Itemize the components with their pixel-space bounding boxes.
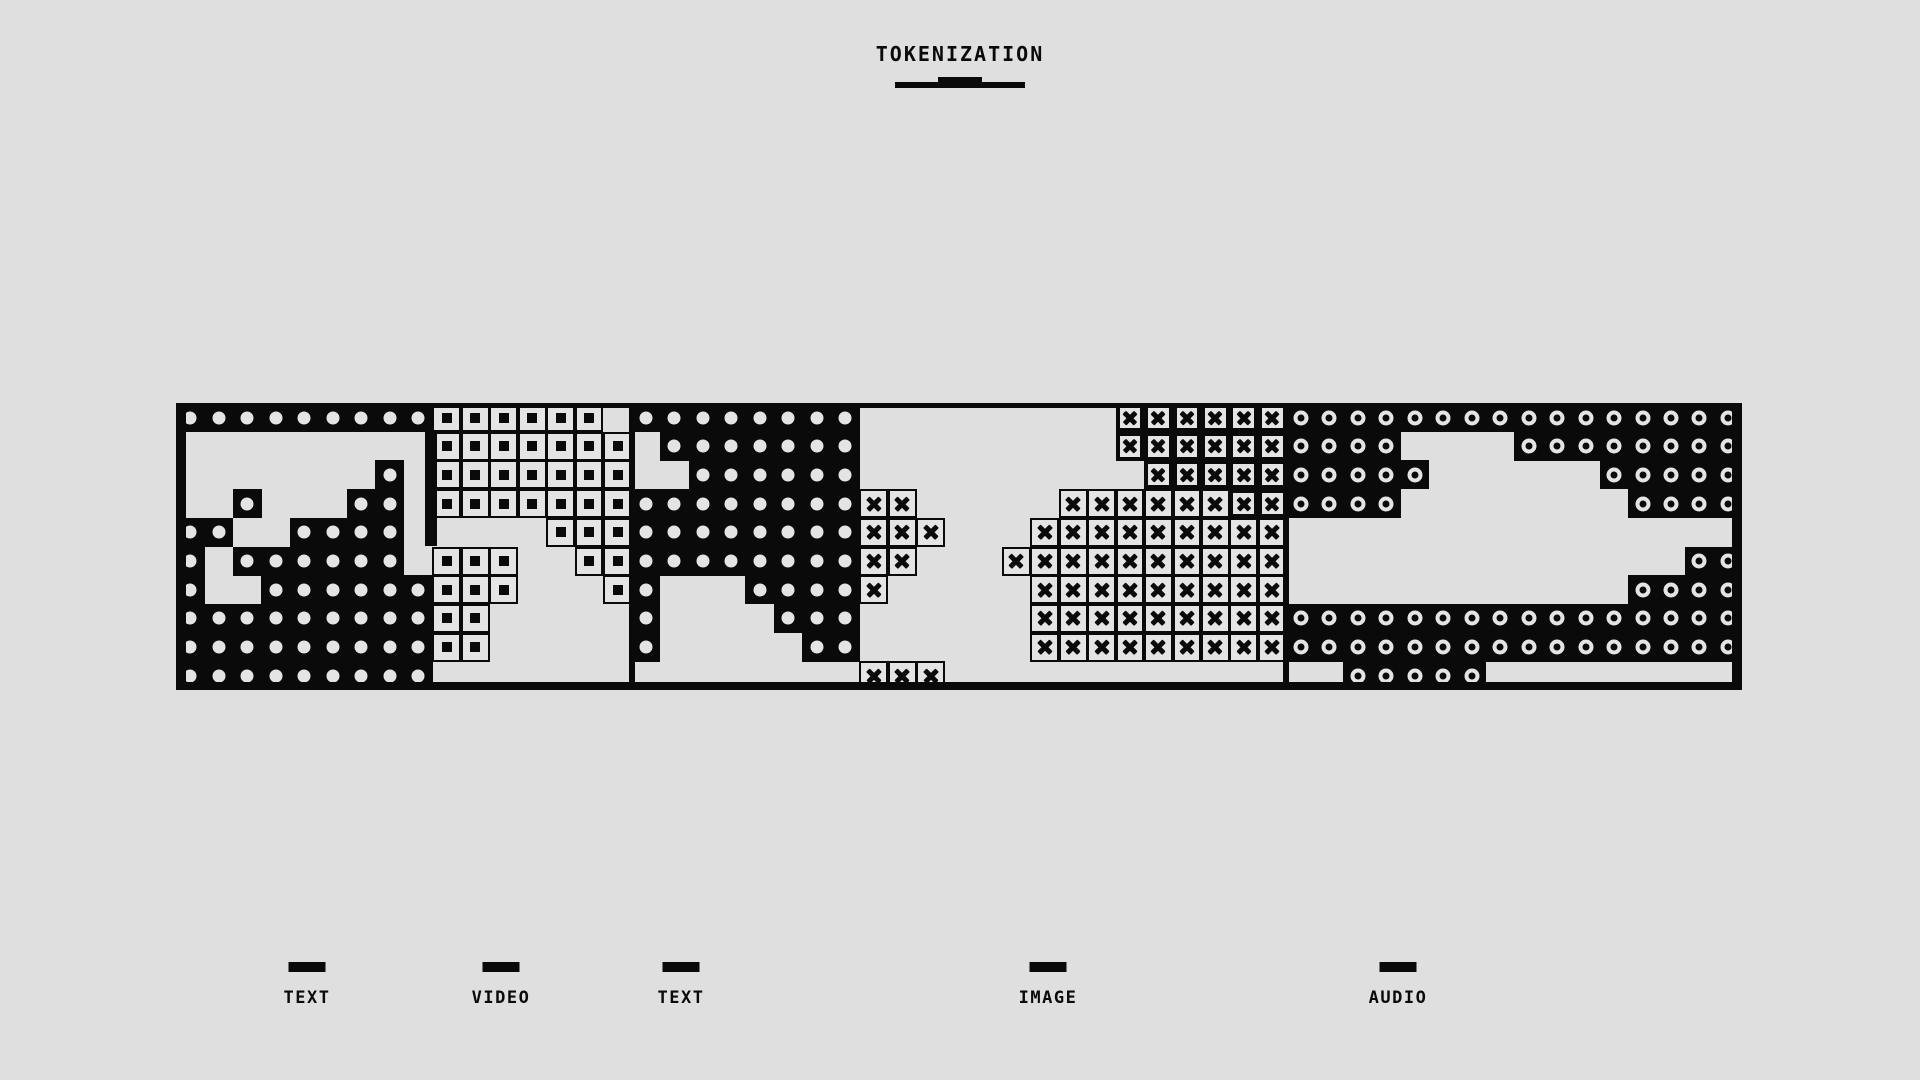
token-cell-audio-token-ring	[1628, 432, 1657, 461]
token-cell-text-token-dot	[689, 518, 718, 547]
token-cell-text-token-dot	[802, 489, 831, 518]
x-icon	[1146, 405, 1171, 430]
token-cell-image-token-x-on-black	[1144, 460, 1173, 489]
token-cell-image-token-x	[1173, 633, 1202, 662]
segment-divider	[629, 403, 635, 690]
token-cell-image-token-x	[1116, 575, 1145, 604]
token-cell-audio-token-ring	[1657, 633, 1686, 662]
token-cell-image-token-x	[1144, 575, 1173, 604]
token-cell-audio-token-ring	[1372, 403, 1401, 432]
token-cell-audio-token-ring	[1343, 661, 1372, 690]
token-cell-text-token-dot	[632, 518, 661, 547]
modality-marker-audio	[1380, 962, 1417, 972]
token-cell-text-token-dot	[831, 547, 860, 576]
token-cell-audio-token-ring	[1657, 604, 1686, 633]
token-cell-image-token-x	[1173, 547, 1202, 576]
modality-marker-text	[289, 962, 326, 972]
token-cell-audio-token-ring	[1571, 403, 1600, 432]
x-icon	[1118, 405, 1143, 430]
page: TOKENIZATION TEXTVIDEOTEXTIMAGEAUDIO	[0, 0, 1920, 1080]
token-cell-text-token-dot	[233, 604, 262, 633]
token-cell-text-token-dot	[774, 432, 803, 461]
token-cell-image-token-x	[1229, 575, 1258, 604]
token-cell-audio-token-ring	[1657, 403, 1686, 432]
modality-label-text: TEXT	[658, 988, 705, 1008]
token-cell-audio-token-ring	[1543, 633, 1572, 662]
token-cell-image-token-x	[859, 661, 888, 690]
token-cell-audio-token-ring	[1429, 403, 1458, 432]
token-cell-text-token-dot	[347, 518, 376, 547]
token-cell-text-token-dot	[717, 460, 746, 489]
token-cell-text-token-dot	[290, 661, 319, 690]
token-cell-image-token-x-on-black	[1229, 403, 1258, 432]
modality-marker-video	[483, 962, 520, 972]
token-cell-text-token-dot	[261, 633, 290, 662]
x-icon	[1260, 405, 1285, 430]
token-cell-audio-token-ring	[1372, 460, 1401, 489]
token-cell-video-token-square	[461, 460, 490, 489]
token-cell-text-token-dot	[261, 575, 290, 604]
token-cell-image-token-x-on-black	[1116, 403, 1145, 432]
token-cell-audio-token-ring	[1685, 460, 1714, 489]
token-cell-text-token-dot	[660, 432, 689, 461]
cutout-rim	[425, 432, 437, 546]
tokenization-strip	[176, 403, 1742, 690]
token-cell-text-token-dot	[689, 403, 718, 432]
token-cell-audio-token-ring	[1372, 604, 1401, 633]
token-cell-text-token-dot	[233, 633, 262, 662]
token-cell-text-token-dot	[290, 547, 319, 576]
token-cell-text-token-dot	[404, 661, 433, 690]
token-cell-text-token-dot	[660, 518, 689, 547]
token-cell-audio-token-ring	[1543, 432, 1572, 461]
token-cell-video-token-square	[489, 403, 518, 432]
token-cell-video-token-square	[432, 547, 461, 576]
token-cell-audio-token-ring	[1657, 432, 1686, 461]
token-cell-audio-token-ring	[1714, 547, 1743, 576]
token-cell-image-token-x	[1030, 633, 1059, 662]
token-cell-audio-token-ring	[1514, 604, 1543, 633]
token-cell-audio-token-ring	[1657, 575, 1686, 604]
token-cell-audio-token-ring	[1600, 604, 1629, 633]
token-cell-audio-token-ring	[1343, 633, 1372, 662]
token-cell-image-token-x	[1087, 489, 1116, 518]
token-cell-video-token-square	[575, 460, 604, 489]
token-cell-text-token-dot	[774, 575, 803, 604]
token-cell-image-token-x	[1059, 489, 1088, 518]
token-cell-video-token-square	[546, 460, 575, 489]
token-cell-text-token-dot	[375, 604, 404, 633]
token-cell-image-token-x	[1059, 604, 1088, 633]
token-cell-video-token-square	[518, 432, 547, 461]
token-cell-audio-token-ring	[1685, 547, 1714, 576]
token-cell-text-token-dot	[802, 604, 831, 633]
token-cell-text-token-dot	[233, 547, 262, 576]
token-cell-video-token-square	[432, 633, 461, 662]
page-title: TOKENIZATION	[0, 42, 1920, 66]
token-cell-text-token-dot	[347, 403, 376, 432]
x-icon	[1118, 434, 1143, 459]
token-cell-audio-token-ring	[1685, 575, 1714, 604]
token-cell-video-token-square	[461, 604, 490, 633]
token-cell-text-token-dot	[261, 403, 290, 432]
token-cell-text-token-dot	[204, 403, 233, 432]
token-cell-text-token-dot	[689, 547, 718, 576]
token-cell-text-token-dot	[774, 489, 803, 518]
token-cell-text-token-dot	[375, 575, 404, 604]
token-cell-audio-token-ring	[1429, 604, 1458, 633]
token-cell-text-token-dot	[745, 575, 774, 604]
token-cell-image-token-x-on-black	[1144, 432, 1173, 461]
token-cell-image-token-x	[1201, 604, 1230, 633]
token-cell-text-token-dot	[802, 547, 831, 576]
token-cell-audio-token-ring	[1400, 604, 1429, 633]
x-icon	[1175, 434, 1200, 459]
token-cell-video-token-square	[546, 403, 575, 432]
token-cell-image-token-x	[1229, 547, 1258, 576]
token-cell-text-token-dot	[802, 633, 831, 662]
token-cell-image-token-x	[1059, 518, 1088, 547]
token-cell-text-token-dot	[689, 432, 718, 461]
token-cell-audio-token-ring	[1628, 604, 1657, 633]
x-icon	[1231, 405, 1256, 430]
token-cell-text-token-dot	[375, 460, 404, 489]
x-icon	[1231, 491, 1256, 516]
token-cell-text-token-dot	[375, 518, 404, 547]
token-cell-audio-token-ring	[1600, 403, 1629, 432]
token-cell-text-token-dot	[802, 575, 831, 604]
token-cell-video-token-square	[603, 460, 632, 489]
token-cell-audio-token-ring	[1571, 432, 1600, 461]
token-cell-audio-token-ring	[1628, 489, 1657, 518]
token-cell-image-token-x	[859, 489, 888, 518]
x-icon	[1203, 462, 1228, 487]
token-cell-audio-token-ring	[1286, 489, 1315, 518]
token-cell-text-token-dot	[802, 403, 831, 432]
token-cell-text-token-dot	[318, 575, 347, 604]
token-cell-image-token-x	[1201, 489, 1230, 518]
token-cell-audio-token-ring	[1457, 403, 1486, 432]
token-cell-image-token-x	[888, 518, 917, 547]
token-cell-text-token-dot	[831, 518, 860, 547]
token-cell-image-token-x	[888, 489, 917, 518]
token-cell-image-token-x	[1201, 633, 1230, 662]
modality-label-video: VIDEO	[472, 988, 531, 1008]
token-cell-video-token-square	[461, 403, 490, 432]
token-cell-audio-token-ring	[1514, 403, 1543, 432]
token-cell-text-token-dot	[632, 489, 661, 518]
token-cell-text-token-dot	[261, 604, 290, 633]
token-cell-text-token-dot	[831, 403, 860, 432]
x-icon	[1146, 434, 1171, 459]
token-cell-audio-token-ring	[1571, 633, 1600, 662]
token-cell-text-token-dot	[660, 547, 689, 576]
token-cell-video-token-square	[461, 633, 490, 662]
token-cell-text-token-dot	[745, 547, 774, 576]
token-cell-image-token-x	[1059, 633, 1088, 662]
token-cell-text-token-dot	[774, 460, 803, 489]
token-cell-video-token-square	[489, 575, 518, 604]
token-cell-audio-token-ring	[1600, 432, 1629, 461]
token-cell-image-token-x	[1144, 633, 1173, 662]
token-cell-audio-token-ring	[1514, 432, 1543, 461]
token-cell-video-token-square	[461, 575, 490, 604]
token-cell-image-token-x	[1087, 633, 1116, 662]
token-cell-audio-token-ring	[1600, 633, 1629, 662]
token-cell-image-token-x	[1087, 604, 1116, 633]
token-cell-video-token-square	[518, 403, 547, 432]
token-cell-audio-token-ring	[1400, 661, 1429, 690]
token-cell-text-token-dot	[290, 575, 319, 604]
token-cell-image-token-x-on-black	[1201, 403, 1230, 432]
token-cell-audio-token-ring	[1685, 633, 1714, 662]
token-cell-video-token-square	[575, 547, 604, 576]
token-cell-text-token-dot	[689, 489, 718, 518]
token-cell-audio-token-ring	[1315, 604, 1344, 633]
token-cell-audio-token-ring	[1315, 460, 1344, 489]
token-cell-text-token-dot	[375, 403, 404, 432]
token-cell-audio-token-ring	[1400, 403, 1429, 432]
token-cell-video-token-square	[546, 518, 575, 547]
token-cell-text-token-dot	[831, 575, 860, 604]
token-cell-text-token-dot	[176, 604, 205, 633]
token-cell-video-token-square	[432, 575, 461, 604]
token-cell-audio-token-ring	[1315, 489, 1344, 518]
token-cell-text-token-dot	[745, 432, 774, 461]
token-cell-audio-token-ring	[1400, 460, 1429, 489]
token-cell-image-token-x	[1201, 575, 1230, 604]
token-cell-video-token-square	[518, 460, 547, 489]
token-cell-image-token-x	[1229, 633, 1258, 662]
token-cell-video-token-square	[603, 575, 632, 604]
token-cell-image-token-x	[916, 518, 945, 547]
token-cell-audio-token-ring	[1571, 604, 1600, 633]
token-cell-image-token-x	[1173, 518, 1202, 547]
token-cell-audio-token-ring	[1657, 460, 1686, 489]
token-cell-image-token-x	[1201, 518, 1230, 547]
token-cell-text-token-dot	[233, 403, 262, 432]
token-cell-text-token-dot	[204, 518, 233, 547]
token-cell-video-token-square	[518, 489, 547, 518]
token-cell-audio-token-ring	[1429, 661, 1458, 690]
token-cell-image-token-x	[1229, 518, 1258, 547]
token-cell-text-token-dot	[347, 604, 376, 633]
x-icon	[1260, 491, 1285, 516]
token-cell-text-token-dot	[802, 460, 831, 489]
token-cell-image-token-x	[1229, 604, 1258, 633]
token-cell-audio-token-ring	[1600, 460, 1629, 489]
token-cell-audio-token-ring	[1457, 604, 1486, 633]
token-cell-audio-token-ring	[1628, 403, 1657, 432]
token-cell-image-token-x	[1116, 518, 1145, 547]
token-cell-image-token-x	[888, 661, 917, 690]
token-cell-audio-token-ring	[1486, 633, 1515, 662]
modality-label-image: IMAGE	[1019, 988, 1078, 1008]
token-cell-text-token-dot	[375, 661, 404, 690]
token-cell-video-token-square	[575, 432, 604, 461]
token-cell-text-token-dot	[318, 403, 347, 432]
token-cell-video-token-square	[489, 432, 518, 461]
token-cell-video-token-square	[489, 460, 518, 489]
token-cell-text-token-dot	[290, 518, 319, 547]
x-icon	[1260, 462, 1285, 487]
token-cell-text-token-dot	[660, 403, 689, 432]
token-cell-image-token-x	[1144, 518, 1173, 547]
token-cell-image-token-x-on-black	[1201, 432, 1230, 461]
token-cell-text-token-dot	[318, 633, 347, 662]
token-cell-video-token-square	[575, 403, 604, 432]
token-cell-image-token-x	[1201, 547, 1230, 576]
token-cell-video-token-square	[546, 432, 575, 461]
token-cell-audio-token-ring	[1714, 403, 1743, 432]
token-cell-video-token-square	[603, 489, 632, 518]
token-cell-text-token-dot	[233, 661, 262, 690]
token-cell-audio-token-ring	[1372, 489, 1401, 518]
token-cell-image-token-x	[859, 547, 888, 576]
token-cell-text-token-dot	[347, 547, 376, 576]
token-cell-video-token-square	[575, 518, 604, 547]
token-cell-image-token-x	[859, 575, 888, 604]
token-cell-text-token-dot	[632, 575, 661, 604]
x-icon	[1146, 462, 1171, 487]
token-cell-text-token-dot	[632, 633, 661, 662]
token-cell-text-token-dot	[318, 518, 347, 547]
token-cell-text-token-dot	[632, 604, 661, 633]
token-cell-text-token-dot	[831, 489, 860, 518]
token-cell-text-token-dot	[204, 633, 233, 662]
token-cell-image-token-x	[1030, 518, 1059, 547]
token-cell-audio-token-ring	[1714, 460, 1743, 489]
token-cell-audio-token-ring	[1372, 432, 1401, 461]
token-cell-text-token-dot	[717, 489, 746, 518]
token-cell-audio-token-ring	[1372, 633, 1401, 662]
token-cell-text-token-dot	[375, 489, 404, 518]
token-cell-text-token-dot	[176, 633, 205, 662]
token-cell-image-token-x-on-black	[1229, 460, 1258, 489]
token-cell-image-token-x	[1144, 604, 1173, 633]
token-cell-text-token-dot	[802, 432, 831, 461]
token-cell-image-token-x	[1173, 604, 1202, 633]
token-cell-text-token-dot	[717, 403, 746, 432]
token-cell-video-token-square	[461, 489, 490, 518]
token-cell-text-token-dot	[176, 403, 205, 432]
token-cell-audio-token-ring	[1286, 604, 1315, 633]
token-cell-audio-token-ring	[1372, 661, 1401, 690]
token-cell-text-token-dot	[204, 661, 233, 690]
token-cell-audio-token-ring	[1714, 604, 1743, 633]
token-cell-video-token-square	[603, 518, 632, 547]
x-icon	[1175, 405, 1200, 430]
token-cell-video-token-square	[489, 547, 518, 576]
token-cell-text-token-dot	[404, 575, 433, 604]
token-cell-text-token-dot	[290, 633, 319, 662]
token-cell-image-token-x-on-black	[1229, 489, 1258, 518]
token-cell-text-token-dot	[290, 403, 319, 432]
token-cell-text-token-dot	[404, 403, 433, 432]
token-cell-image-token-x	[888, 547, 917, 576]
token-cell-audio-token-ring	[1315, 633, 1344, 662]
token-cell-text-token-dot	[261, 661, 290, 690]
token-cell-text-token-dot	[745, 460, 774, 489]
token-cell-audio-token-ring	[1543, 604, 1572, 633]
token-cell-audio-token-ring	[1343, 604, 1372, 633]
token-cell-audio-token-ring	[1714, 575, 1743, 604]
token-cell-text-token-dot	[261, 547, 290, 576]
token-cell-video-token-square	[546, 489, 575, 518]
token-cell-image-token-x-on-black	[1201, 460, 1230, 489]
modality-marker-text	[663, 962, 700, 972]
token-cell-audio-token-ring	[1685, 604, 1714, 633]
token-cell-image-token-x	[1173, 575, 1202, 604]
modality-label-text: TEXT	[284, 988, 331, 1008]
token-cell-video-token-square	[461, 432, 490, 461]
token-cell-audio-token-ring	[1628, 460, 1657, 489]
token-cell-image-token-x	[1144, 489, 1173, 518]
token-cell-image-token-x-on-black	[1229, 432, 1258, 461]
token-cell-image-token-x	[1087, 518, 1116, 547]
token-cell-audio-token-ring	[1286, 633, 1315, 662]
token-cell-audio-token-ring	[1315, 403, 1344, 432]
token-cell-text-token-dot	[717, 432, 746, 461]
modality-label-audio: AUDIO	[1369, 988, 1428, 1008]
token-cell-text-token-dot	[774, 403, 803, 432]
token-cell-text-token-dot	[176, 575, 205, 604]
token-cell-audio-token-ring	[1286, 460, 1315, 489]
token-cell-audio-token-ring	[1628, 633, 1657, 662]
token-cell-image-token-x	[1059, 547, 1088, 576]
token-cell-audio-token-ring	[1486, 604, 1515, 633]
token-cell-text-token-dot	[318, 661, 347, 690]
token-cell-image-token-x	[1087, 547, 1116, 576]
token-cell-text-token-dot	[717, 547, 746, 576]
token-cell-video-token-square	[432, 403, 461, 432]
token-cell-text-token-dot	[404, 604, 433, 633]
token-cell-image-token-x	[1144, 547, 1173, 576]
token-cell-audio-token-ring	[1400, 633, 1429, 662]
token-cell-audio-token-ring	[1343, 489, 1372, 518]
token-cell-video-token-square	[489, 489, 518, 518]
token-cell-text-token-dot	[802, 518, 831, 547]
token-cell-text-token-dot	[290, 604, 319, 633]
token-cell-text-token-dot	[204, 604, 233, 633]
token-cell-image-token-x	[1116, 547, 1145, 576]
token-cell-audio-token-ring	[1343, 432, 1372, 461]
x-icon	[1231, 462, 1256, 487]
token-cell-audio-token-ring	[1343, 403, 1372, 432]
token-cell-image-token-x	[1030, 547, 1059, 576]
token-cell-text-token-dot	[774, 518, 803, 547]
token-cell-text-token-dot	[176, 661, 205, 690]
token-cell-audio-token-ring	[1315, 432, 1344, 461]
token-cell-audio-token-ring	[1486, 403, 1515, 432]
token-cell-image-token-x	[1116, 604, 1145, 633]
token-cell-text-token-dot	[404, 633, 433, 662]
token-cell-audio-token-ring	[1457, 633, 1486, 662]
token-cell-text-token-dot	[831, 432, 860, 461]
token-cell-text-token-dot	[176, 518, 205, 547]
token-cell-audio-token-ring	[1543, 403, 1572, 432]
token-cell-text-token-dot	[745, 403, 774, 432]
token-cell-text-token-dot	[774, 604, 803, 633]
token-cell-text-token-dot	[375, 633, 404, 662]
token-cell-audio-token-ring	[1457, 661, 1486, 690]
token-cell-image-token-x	[1173, 489, 1202, 518]
token-cell-audio-token-ring	[1714, 489, 1743, 518]
title-marker-bump	[938, 77, 982, 88]
token-cell-image-token-x	[859, 518, 888, 547]
token-cell-image-token-x	[1116, 633, 1145, 662]
x-icon	[1175, 462, 1200, 487]
